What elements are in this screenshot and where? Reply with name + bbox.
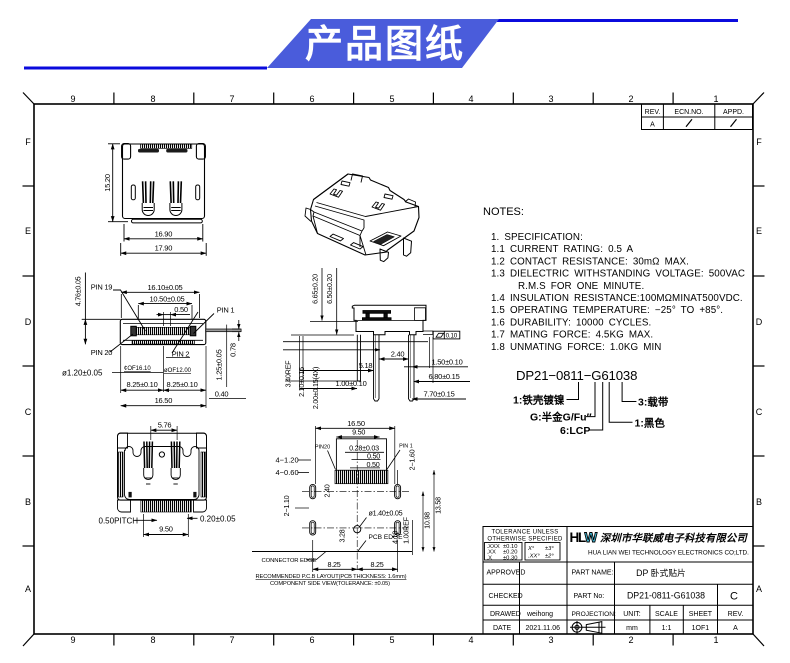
svg-text:A: A xyxy=(733,625,738,632)
svg-text:G:半金G/Fu″: G:半金G/Fu″ xyxy=(530,411,592,424)
svg-text:1.1 CURRENT RATING: 0.5 A: 1.1 CURRENT RATING: 0.5 A xyxy=(491,244,634,255)
svg-text:SCALE: SCALE xyxy=(655,611,678,618)
svg-text:深圳市华联威电子科技有限公司: 深圳市华联威电子科技有限公司 xyxy=(600,533,748,545)
svg-text:X°: X° xyxy=(527,546,535,552)
svg-text:3.40REF: 3.40REF xyxy=(284,360,293,387)
svg-text:1:1: 1:1 xyxy=(662,625,672,632)
svg-text:mm: mm xyxy=(626,625,638,632)
svg-text:10.98: 10.98 xyxy=(422,512,431,529)
svg-text:0.50: 0.50 xyxy=(174,305,188,314)
svg-text:1.00±0.10: 1.00±0.10 xyxy=(335,379,366,388)
svg-text:6.65±0.20: 6.65±0.20 xyxy=(311,274,320,304)
svg-text:16.50: 16.50 xyxy=(155,396,173,405)
svg-text:5.76: 5.76 xyxy=(158,420,172,429)
svg-text:1.8 UNMATING FORCE: 1.0KG MIN: 1.8 UNMATING FORCE: 1.0KG MIN xyxy=(491,342,661,353)
svg-text:8.25: 8.25 xyxy=(371,560,384,569)
svg-text:PIN 1: PIN 1 xyxy=(399,444,413,450)
svg-text:7: 7 xyxy=(229,94,234,104)
svg-text:17.90: 17.90 xyxy=(155,244,173,253)
svg-text:3:载带: 3:载带 xyxy=(638,396,669,409)
svg-text:8.25±0.10: 8.25±0.10 xyxy=(126,380,157,389)
svg-text:RECOMMENDED P.C.B LAYOUT(PCB T: RECOMMENDED P.C.B LAYOUT(PCB THICKNESS: … xyxy=(256,574,407,580)
svg-text:3.28: 3.28 xyxy=(338,529,347,542)
svg-text:PART No:: PART No: xyxy=(574,593,605,600)
svg-text:±2°: ±2° xyxy=(545,554,554,560)
svg-text:9.50: 9.50 xyxy=(352,428,365,437)
svg-text:OTHERWISE SPECIFIED: OTHERWISE SPECIFIED xyxy=(487,537,563,543)
svg-text:CHECKED: CHECKED xyxy=(489,593,523,600)
svg-text:ECN.NO.: ECN.NO. xyxy=(674,109,703,116)
svg-text:TOLERANCE UNLESS: TOLERANCE UNLESS xyxy=(491,530,558,536)
svg-text:0.50: 0.50 xyxy=(367,460,380,469)
svg-text:REV.: REV. xyxy=(645,109,661,116)
svg-text:F: F xyxy=(756,137,762,147)
svg-text:1: 1 xyxy=(713,635,718,645)
svg-text:1:铁壳镀镍: 1:铁壳镀镍 xyxy=(513,394,565,407)
svg-text:8: 8 xyxy=(150,635,155,645)
svg-text:13.58: 13.58 xyxy=(433,497,442,514)
svg-text:HUA LIAN WEI TECHNOLOGY ELECTR: HUA LIAN WEI TECHNOLOGY ELECTRONICS CO;L… xyxy=(588,550,749,557)
svg-text:4.76±0.05: 4.76±0.05 xyxy=(74,276,83,306)
svg-text:2.10±0.15: 2.10±0.15 xyxy=(297,367,306,397)
svg-text:4: 4 xyxy=(468,94,473,104)
svg-text:1OF1: 1OF1 xyxy=(692,625,710,632)
svg-text:0.20±0.05: 0.20±0.05 xyxy=(200,514,236,523)
svg-text:2.40: 2.40 xyxy=(323,484,332,497)
svg-text:DP 卧式贴片: DP 卧式贴片 xyxy=(636,567,686,578)
svg-text:DP21−0811−G61038: DP21−0811−G61038 xyxy=(516,368,637,383)
svg-text:ø1.40±0.05: ø1.40±0.05 xyxy=(369,509,403,518)
svg-text:1:黑色: 1:黑色 xyxy=(635,417,666,430)
svg-text:APPD.: APPD. xyxy=(723,109,744,116)
svg-text:0.78: 0.78 xyxy=(229,343,238,357)
svg-text:8: 8 xyxy=(150,94,155,104)
svg-text:2021.11.06: 2021.11.06 xyxy=(526,625,561,632)
svg-text:10.50±0.05: 10.50±0.05 xyxy=(150,295,185,304)
svg-text:.X: .X xyxy=(487,555,493,561)
svg-text:W: W xyxy=(585,530,598,545)
svg-text:E: E xyxy=(25,226,31,236)
svg-text:1.3 DIELECTRIC WITHSTANDING VO: 1.3 DIELECTRIC WITHSTANDING VOLTAGE: 500… xyxy=(491,269,745,280)
svg-text:0.10: 0.10 xyxy=(446,332,458,339)
svg-text:DP21-0811-G61038: DP21-0811-G61038 xyxy=(627,591,705,601)
svg-text:2−1.60: 2−1.60 xyxy=(408,449,417,470)
svg-text:1.2 CONTACT RESISTANCE: 30mΩ M: 1.2 CONTACT RESISTANCE: 30mΩ MAX. xyxy=(491,256,689,267)
svg-text:1.6 DURABILITY: 10000 CYCLES.: 1.6 DURABILITY: 10000 CYCLES. xyxy=(491,317,651,328)
svg-text:C: C xyxy=(25,407,32,417)
svg-text:¢OF16.10: ¢OF16.10 xyxy=(124,366,151,372)
svg-text:E: E xyxy=(756,226,762,236)
svg-text:2.00±0.15(4X): 2.00±0.15(4X) xyxy=(311,367,320,409)
svg-text:B: B xyxy=(756,497,762,507)
svg-text:PIN 19: PIN 19 xyxy=(91,283,113,292)
svg-text:1.4 INSULATION RESISTANCE:100M: 1.4 INSULATION RESISTANCE:100MΩMINAT500V… xyxy=(491,293,743,304)
svg-text:5: 5 xyxy=(389,635,394,645)
svg-text:PROJECTION:: PROJECTION: xyxy=(572,611,616,618)
svg-text:PART NAME:: PART NAME: xyxy=(572,570,614,577)
svg-text:16.90: 16.90 xyxy=(155,229,173,238)
svg-text:1.50±0.10: 1.50±0.10 xyxy=(431,358,462,367)
svg-text:15.20: 15.20 xyxy=(103,174,112,192)
svg-text:C: C xyxy=(756,407,763,417)
svg-text:4−0.60: 4−0.60 xyxy=(276,468,299,477)
svg-text:C: C xyxy=(730,591,738,603)
svg-text:øOF12.00: øOF12.00 xyxy=(164,368,192,374)
svg-text:A: A xyxy=(756,584,762,594)
svg-text:4: 4 xyxy=(468,635,473,645)
svg-text:9.50: 9.50 xyxy=(159,525,173,534)
svg-text:APPROVED: APPROVED xyxy=(487,570,526,577)
svg-text:8.25±0.10: 8.25±0.10 xyxy=(166,380,197,389)
svg-text:6: 6 xyxy=(309,94,314,104)
svg-text:PIN 1: PIN 1 xyxy=(217,306,235,315)
svg-text:2: 2 xyxy=(628,635,633,645)
svg-text:PIN20: PIN20 xyxy=(315,445,330,451)
svg-text:F: F xyxy=(25,137,31,147)
svg-text:6.50±0.20: 6.50±0.20 xyxy=(325,274,334,304)
svg-text:0.40: 0.40 xyxy=(215,390,229,399)
svg-text:1.00REF: 1.00REF xyxy=(401,516,410,543)
svg-text:DATE: DATE xyxy=(493,625,511,632)
svg-text:8.25: 8.25 xyxy=(328,560,341,569)
svg-text:6: 6 xyxy=(309,635,314,645)
svg-text:1.5 OPERATING TEMPERATURE: −25: 1.5 OPERATING TEMPERATURE: −25° TO +85°. xyxy=(491,305,723,316)
svg-text:16.50: 16.50 xyxy=(347,419,365,428)
svg-text:6:LCP: 6:LCP xyxy=(560,425,590,437)
svg-text:PIN 20: PIN 20 xyxy=(91,348,113,357)
svg-text:2.40: 2.40 xyxy=(391,349,405,358)
svg-text:R.M.S FOR ONE MINUTE.: R.M.S FOR ONE MINUTE. xyxy=(518,281,644,292)
svg-text:9: 9 xyxy=(70,94,75,104)
svg-text:D: D xyxy=(756,317,763,327)
svg-text:9: 9 xyxy=(70,635,75,645)
svg-text:.XX°: .XX° xyxy=(528,554,540,560)
svg-text:4−1.20: 4−1.20 xyxy=(276,455,299,464)
svg-text:7: 7 xyxy=(229,635,234,645)
svg-text:REV.: REV. xyxy=(728,611,744,618)
svg-text:0.50PITCH: 0.50PITCH xyxy=(99,517,139,526)
svg-text:±3°: ±3° xyxy=(545,546,554,552)
svg-text:7.70±0.15: 7.70±0.15 xyxy=(423,390,454,399)
svg-text:weihong: weihong xyxy=(526,611,553,618)
svg-text:2−1.10: 2−1.10 xyxy=(282,495,291,516)
svg-text:5.18: 5.18 xyxy=(359,361,373,370)
svg-text:CONNECTOR EDGE: CONNECTOR EDGE xyxy=(262,558,317,564)
svg-text:1. SPECIFICATION:: 1. SPECIFICATION: xyxy=(491,232,583,243)
svg-text:D: D xyxy=(25,317,32,327)
svg-text:1: 1 xyxy=(713,94,718,104)
svg-text:产品图纸: 产品图纸 xyxy=(305,24,465,66)
svg-text:2: 2 xyxy=(628,94,633,104)
svg-text:DRAWED: DRAWED xyxy=(490,611,521,618)
svg-text:16.10±0.05: 16.10±0.05 xyxy=(148,283,183,292)
svg-text:A: A xyxy=(25,584,31,594)
svg-text:±0.30: ±0.30 xyxy=(503,555,517,561)
svg-text:SHEET: SHEET xyxy=(689,611,713,618)
svg-text:B: B xyxy=(25,497,31,507)
svg-text:3: 3 xyxy=(548,635,553,645)
svg-text:ø1.20±0.05: ø1.20±0.05 xyxy=(62,369,103,378)
svg-text:COMPONENT SIDE VIEW(TOLERANCE:: COMPONENT SIDE VIEW(TOLERANCE: ±0.05) xyxy=(270,581,390,587)
svg-text:5: 5 xyxy=(389,94,394,104)
svg-text:3: 3 xyxy=(548,94,553,104)
svg-text:UNIT:: UNIT: xyxy=(623,611,641,618)
svg-text:1.7 MATING FORCE: 4.5KG MAX.: 1.7 MATING FORCE: 4.5KG MAX. xyxy=(491,330,653,341)
svg-text:4.18: 4.18 xyxy=(391,531,400,544)
svg-text:NOTES:: NOTES: xyxy=(483,206,524,218)
svg-text:1.25±0.05: 1.25±0.05 xyxy=(215,349,224,380)
svg-text:A: A xyxy=(650,121,655,128)
